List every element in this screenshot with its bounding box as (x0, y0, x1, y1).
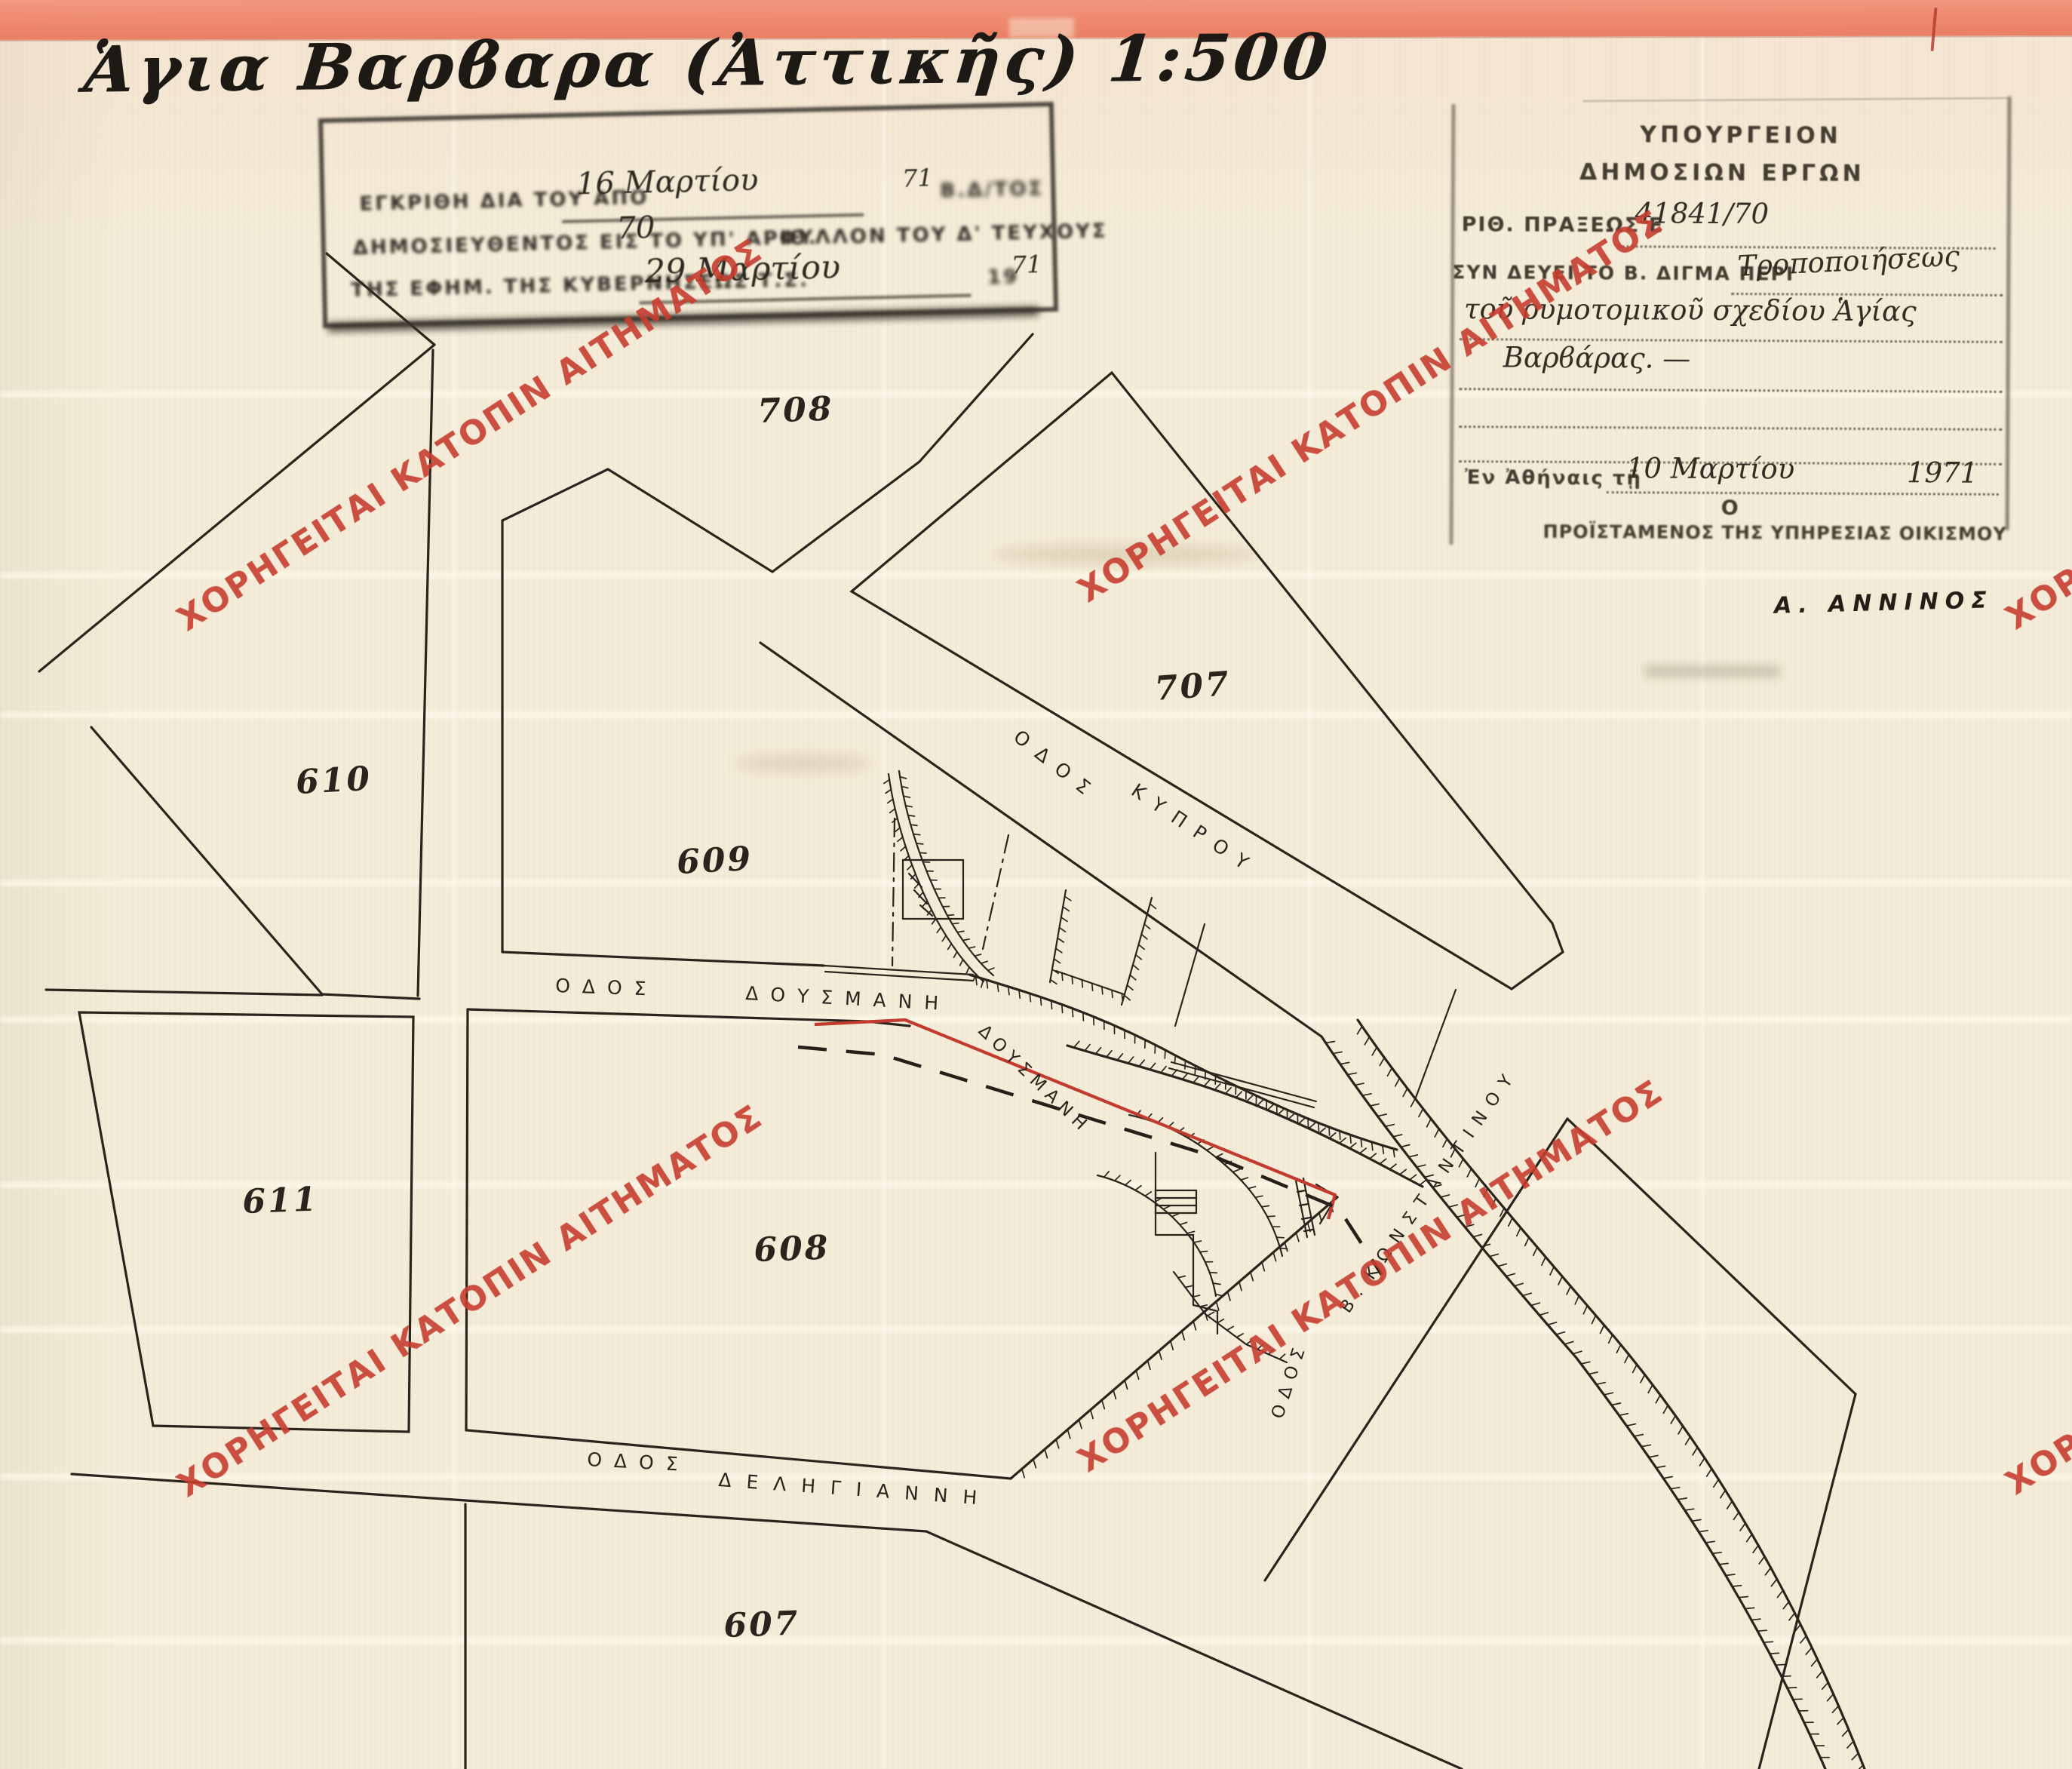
approval-line1-tail: Β.Δ/ΤΟΣ (940, 177, 1045, 202)
dotted-line (1460, 388, 2003, 393)
approval-line3-year: 71 (1011, 250, 1042, 279)
hatch-ticks (900, 777, 994, 971)
page-title: Ἁγια Βαρϐαρα (Ἀττικῆς) 1:500 (81, 19, 1334, 106)
street-label-dousmani-name: ΔΟΥΣΜΑΝΗ (745, 982, 951, 1015)
map-labels: 708 707 610 609 611 608 607 ΟΔΟΣ ΚΥΠΡΟΥ … (242, 390, 1523, 1645)
block-label-707: 707 (1153, 665, 1232, 708)
faint-stamp-residue (1644, 665, 1780, 677)
hatch-ticks (1051, 896, 1071, 984)
approval-line2-number: 70 (616, 210, 655, 246)
block-label-607: 607 (723, 1605, 801, 1645)
hatch-ticks (976, 977, 1395, 1157)
ministry-year-value: 1971 (1907, 456, 1978, 489)
hatch-ticks (884, 780, 984, 987)
dotted-line (1459, 425, 2002, 431)
ministry-header-1: ΥΠΟΥΡΓΕΙΟΝ (1640, 121, 1842, 149)
block-label-609: 609 (676, 840, 754, 882)
hatch-ticks (1136, 1110, 1288, 1249)
ministry-place-date-label: Ἐν Ἀθήναις τῇ (1465, 466, 1642, 490)
ministry-header-2: ΔΗΜΟΣΙΩΝ ΕΡΓΩΝ (1579, 159, 1865, 187)
ministry-stamp-right-border (2006, 97, 2012, 530)
block-label-611: 611 (242, 1181, 320, 1221)
hatch-ticks (1062, 973, 1122, 1001)
street-label-kyprou-name: ΚΥΠΡΟΥ (1128, 779, 1263, 880)
street-label-kyprou-odos: ΟΔΟΣ (1009, 726, 1104, 806)
street-label-deligianni-odos: ΟΔΟΣ (587, 1448, 691, 1476)
street-label-dousmani-realigned: ΔΟΥΣΜΑΝΗ (975, 1021, 1094, 1138)
street-label-deligianni-name: ΔΕΛΗΓΙΑΝΝΗ (718, 1469, 993, 1509)
dotted-line (1607, 491, 1999, 496)
ministry-signatory-article: Ο (1721, 496, 1740, 520)
ministry-stamp-left-border (1449, 104, 1455, 545)
ministry-decree-value3: Βαρϐάρας. — (1503, 341, 1691, 374)
approval-line1-date: 16 Μαρτίου (576, 163, 759, 201)
approval-line1-year: 71 (902, 164, 934, 193)
street-label-dousmani-odos: ΟΔΟΣ (555, 975, 658, 1000)
proposed-dashed-line (798, 1047, 1382, 1275)
ministry-signatory-title: ΠΡΟΪΣΤΑΜΕΝΟΣ ΤΗΣ ΥΠΗΡΕΣΙΑΣ ΟΙΚΙΣΜΟΥ (1542, 521, 2006, 545)
block-label-610: 610 (295, 760, 373, 802)
block-label-708: 708 (757, 390, 835, 431)
block-label-608: 608 (754, 1229, 831, 1270)
scanned-plan-page: 708 707 610 609 611 608 607 ΟΔΟΣ ΚΥΠΡΟΥ … (0, 0, 2072, 1769)
ministry-date-value: 10 Μαρτίου (1626, 452, 1794, 485)
